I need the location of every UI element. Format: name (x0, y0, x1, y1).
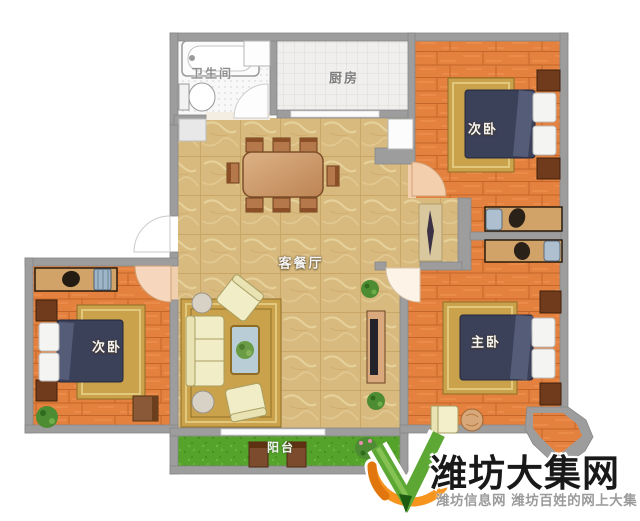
nightstand (36, 300, 57, 321)
nightstand (36, 380, 57, 401)
pillow (39, 353, 59, 381)
wall-top (170, 33, 568, 41)
wall-bedroom-left-top (25, 258, 178, 266)
plant-leaf (372, 290, 377, 295)
plant-leaf (371, 396, 376, 401)
room-label-kitchen: 厨房 (329, 68, 359, 87)
wall-living-left-lower (170, 300, 178, 474)
room-label-balcony: 阳台 (267, 439, 295, 456)
coffee-table-plant (236, 341, 254, 359)
flower (368, 439, 372, 443)
bathtub-faucet (189, 55, 195, 61)
tv (370, 319, 378, 375)
plant-leaf (365, 284, 370, 289)
wall-master-top (470, 232, 561, 240)
wall-block-mid (375, 148, 415, 164)
wall-corridor-right (458, 198, 471, 270)
wall-bedroom-left-left (25, 258, 33, 433)
office-chair (544, 241, 560, 261)
plant-leaf (378, 402, 383, 407)
shoe-cabinet (179, 119, 206, 141)
pillow (533, 93, 556, 122)
room-label-master-bedroom: 主卧 (471, 332, 501, 351)
wall-living-left-upper (170, 125, 178, 216)
plant-leaf (49, 418, 55, 424)
round-table (461, 409, 483, 431)
room-label-bathroom: 卫生间 (191, 65, 233, 82)
plant-leaf (239, 344, 245, 350)
dining-table (243, 152, 323, 197)
plant-leaf (40, 410, 46, 416)
armchair (225, 383, 267, 423)
plant (36, 406, 58, 428)
pillow (39, 323, 59, 351)
pillow (532, 349, 555, 378)
room-label-bedroom-left: 次卧 (92, 337, 122, 356)
wall-bathroom-left (170, 33, 178, 125)
sofa-back (186, 316, 195, 386)
plant (367, 392, 385, 410)
room-label-living-dining: 客餐厅 (278, 253, 323, 272)
sofa (186, 316, 224, 386)
plant-leaf (246, 350, 252, 356)
washbasin-counter (244, 41, 270, 66)
wall-corridor-bottom-a (375, 262, 386, 270)
wall-corridor-bottom-b (420, 262, 462, 270)
fridge (388, 119, 413, 149)
chair-back (152, 396, 158, 421)
flower (359, 441, 363, 445)
balcony-chair-back (249, 442, 268, 448)
entry-door-arc (134, 216, 170, 252)
pillow (532, 318, 555, 347)
floor-plan-image: 卫生间 厨房 次卧 客餐厅 次卧 主卧 阳台 潍坊大集网 潍坊信息网 潍坊百姓的… (0, 0, 640, 521)
wall-bath-kitchen-divider (270, 41, 277, 115)
balcony-window (221, 429, 325, 435)
toilet-bowl (189, 83, 215, 111)
kitchen-window (291, 111, 379, 117)
nightstand (540, 383, 561, 405)
plant (361, 280, 379, 298)
side-table (192, 391, 214, 413)
pillow (533, 126, 556, 155)
plant-leaf (361, 451, 366, 456)
room-label-bedroom-top-right: 次卧 (468, 119, 498, 138)
armchair-back (431, 406, 438, 433)
site-tagline: 潍坊信息网 潍坊百姓的网上大集 (436, 489, 637, 509)
nightstand (537, 70, 560, 91)
side-table (192, 293, 212, 313)
nightstand (540, 291, 561, 313)
toilet-tank (179, 84, 189, 110)
nightstand (537, 158, 560, 179)
office-chair (486, 209, 502, 230)
